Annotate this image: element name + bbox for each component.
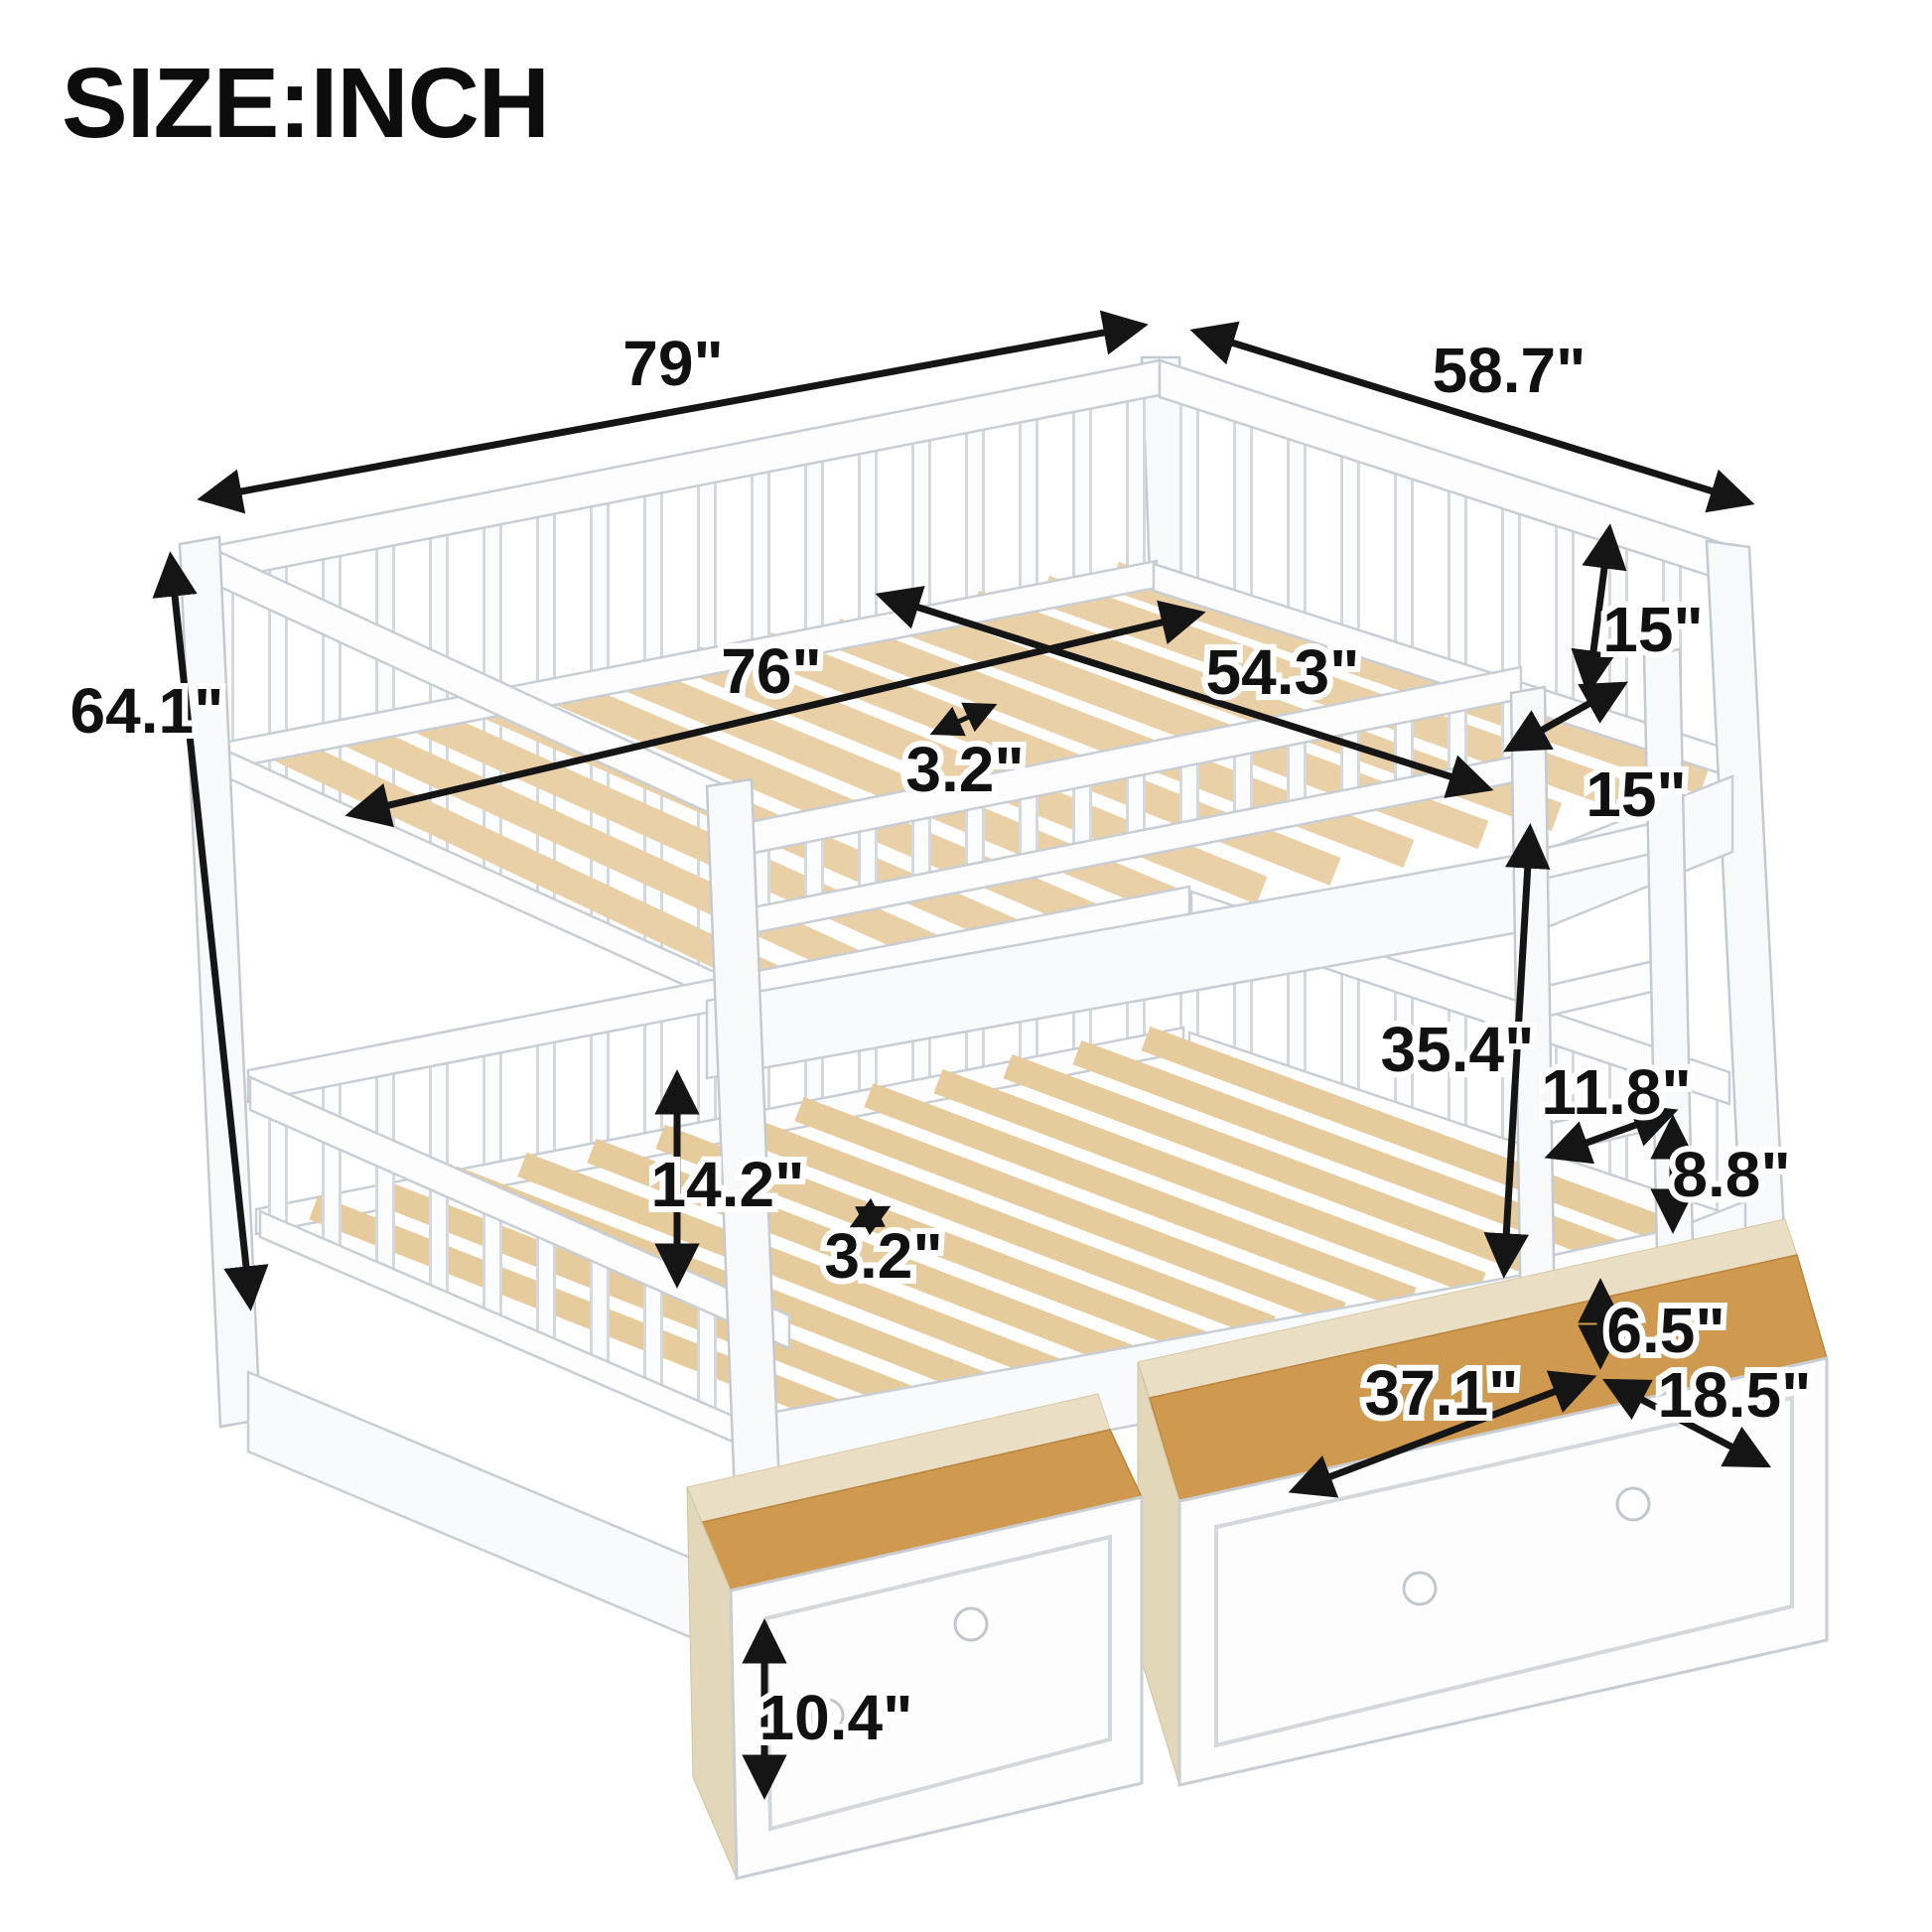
dimension-label: 8.8" xyxy=(1672,1139,1790,1210)
dimension-label: 15" xyxy=(1586,759,1687,830)
dimension-lower-slat-gap: 3.2" xyxy=(824,1208,942,1292)
dimension-label: 15" xyxy=(1602,594,1704,665)
dimension-label: 79" xyxy=(622,328,724,399)
dimension-label: 76" xyxy=(721,635,822,707)
dimension-label: 3.2" xyxy=(905,734,1024,805)
size-diagram-page: SIZE:INCH 79" 58.7" 76" 54.3" 3.2" 15" 1… xyxy=(0,0,1932,1932)
dimension-label: 11.8" xyxy=(1541,1056,1691,1128)
dimension-label: 54.3" xyxy=(1206,636,1360,708)
drawer-knob xyxy=(1617,1488,1649,1520)
dimension-label: 35.4" xyxy=(1381,1014,1535,1085)
dimension-label: 18.5" xyxy=(1658,1359,1812,1431)
drawer-knob xyxy=(955,1608,987,1640)
bunk-bed-dimension-diagram: SIZE:INCH 79" 58.7" 76" 54.3" 3.2" 15" 1… xyxy=(0,0,1932,1932)
dimension-label: 58.7" xyxy=(1433,335,1587,406)
dimension-label: 6.5" xyxy=(1606,1295,1725,1366)
dimension-label: 10.4" xyxy=(759,1682,913,1753)
dimension-label: 37.1" xyxy=(1365,1357,1519,1429)
dimension-label: 14.2" xyxy=(651,1149,805,1220)
dimension-label: 64.1" xyxy=(70,675,224,747)
drawer-knob xyxy=(1404,1573,1436,1604)
page-title: SIZE:INCH xyxy=(62,48,549,159)
dimension-label: 3.2" xyxy=(824,1220,942,1292)
dimension-drawer-clearance: 6.5" xyxy=(1600,1285,1725,1366)
